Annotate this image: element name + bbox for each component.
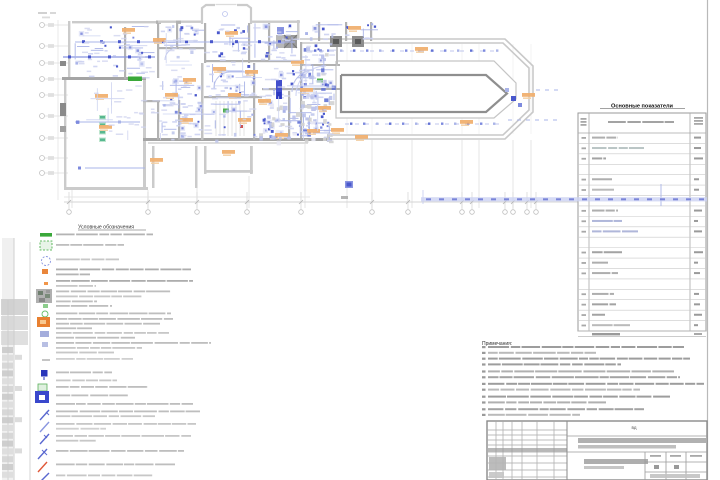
svg-text:вд: вд [632, 425, 637, 430]
svg-text:Условные обозначения: Условные обозначения [78, 225, 134, 231]
